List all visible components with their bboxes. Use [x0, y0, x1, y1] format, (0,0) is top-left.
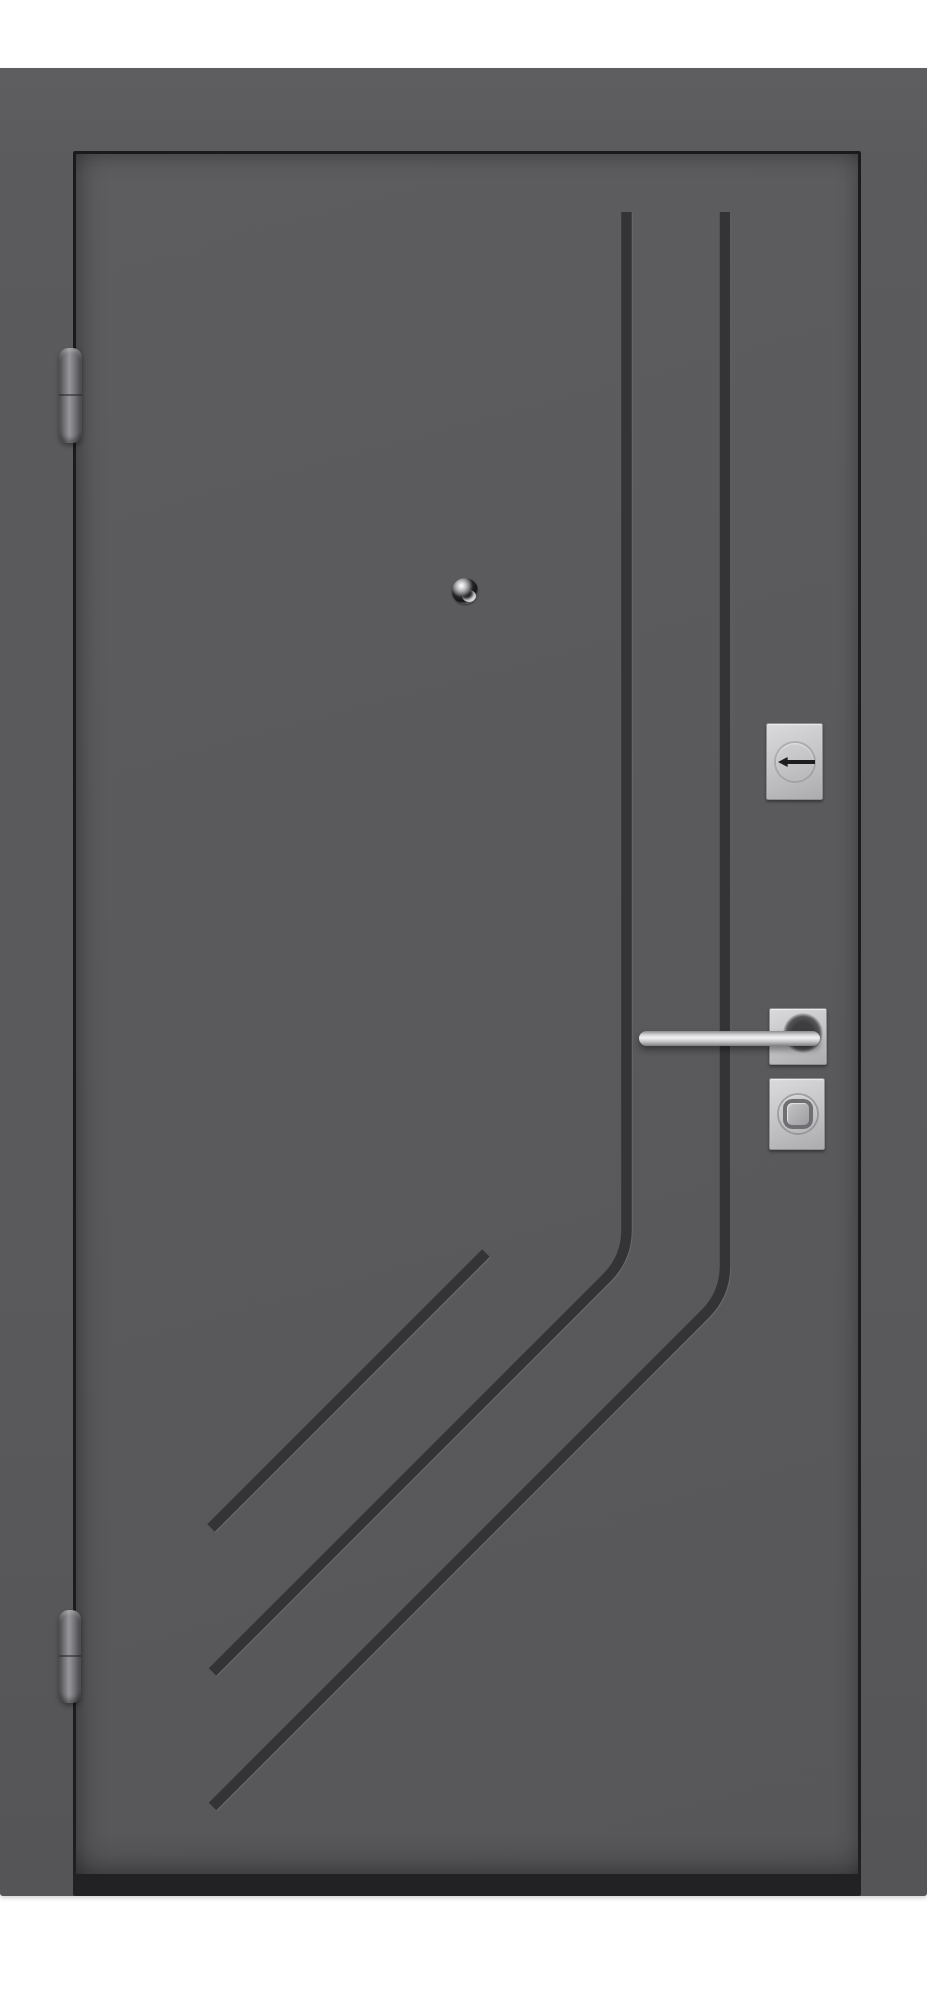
peephole-highlight: [462, 590, 476, 602]
thumbturn-knob: [783, 1099, 813, 1129]
hinge-knuckle-seam: [59, 1655, 81, 1657]
door-handle-lever: [639, 1031, 820, 1046]
top-hinge: [59, 348, 82, 443]
bottom-hinge: [59, 1610, 81, 1703]
thumbturn-escutcheon: [769, 1078, 825, 1150]
hinge-knuckle-seam: [59, 394, 82, 396]
cylinder-escutcheon: [766, 723, 823, 800]
door-leaf: [76, 154, 858, 1874]
peephole: [452, 578, 478, 604]
door-product-photo: [0, 0, 927, 2000]
